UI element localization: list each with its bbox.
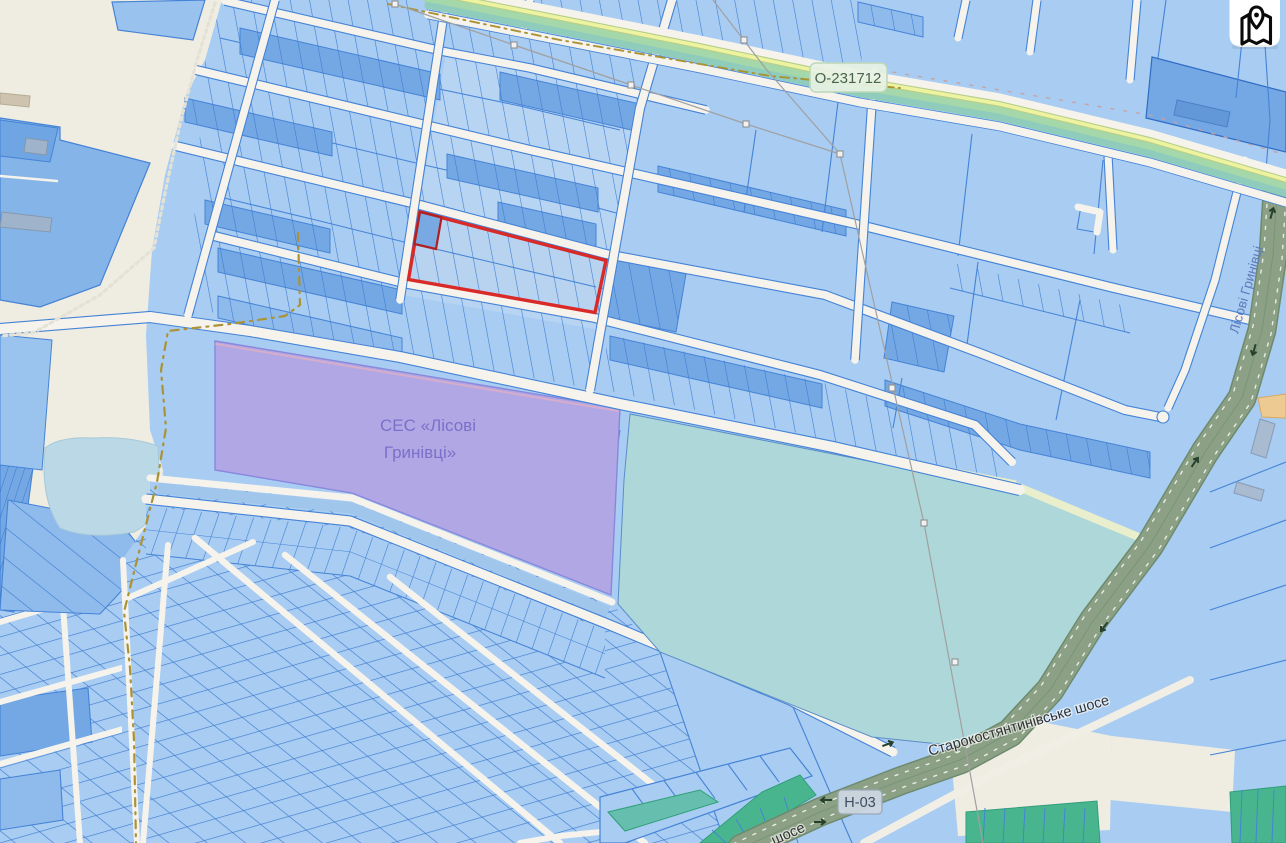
svg-text:Н-03: Н-03 — [844, 795, 875, 811]
svg-text:СЕС «Лісові: СЕС «Лісові — [380, 416, 476, 435]
svg-text:Гринівці»: Гринівці» — [384, 443, 456, 462]
svg-text:О-231712: О-231712 — [815, 70, 882, 87]
